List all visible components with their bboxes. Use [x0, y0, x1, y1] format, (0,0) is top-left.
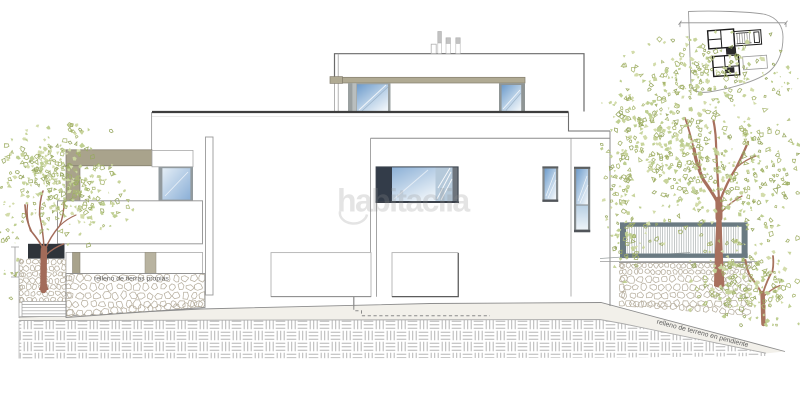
svg-text:habitaclia: habitaclia	[337, 183, 470, 219]
svg-text:relleno de tierras propias: relleno de tierras propias	[94, 276, 169, 283]
